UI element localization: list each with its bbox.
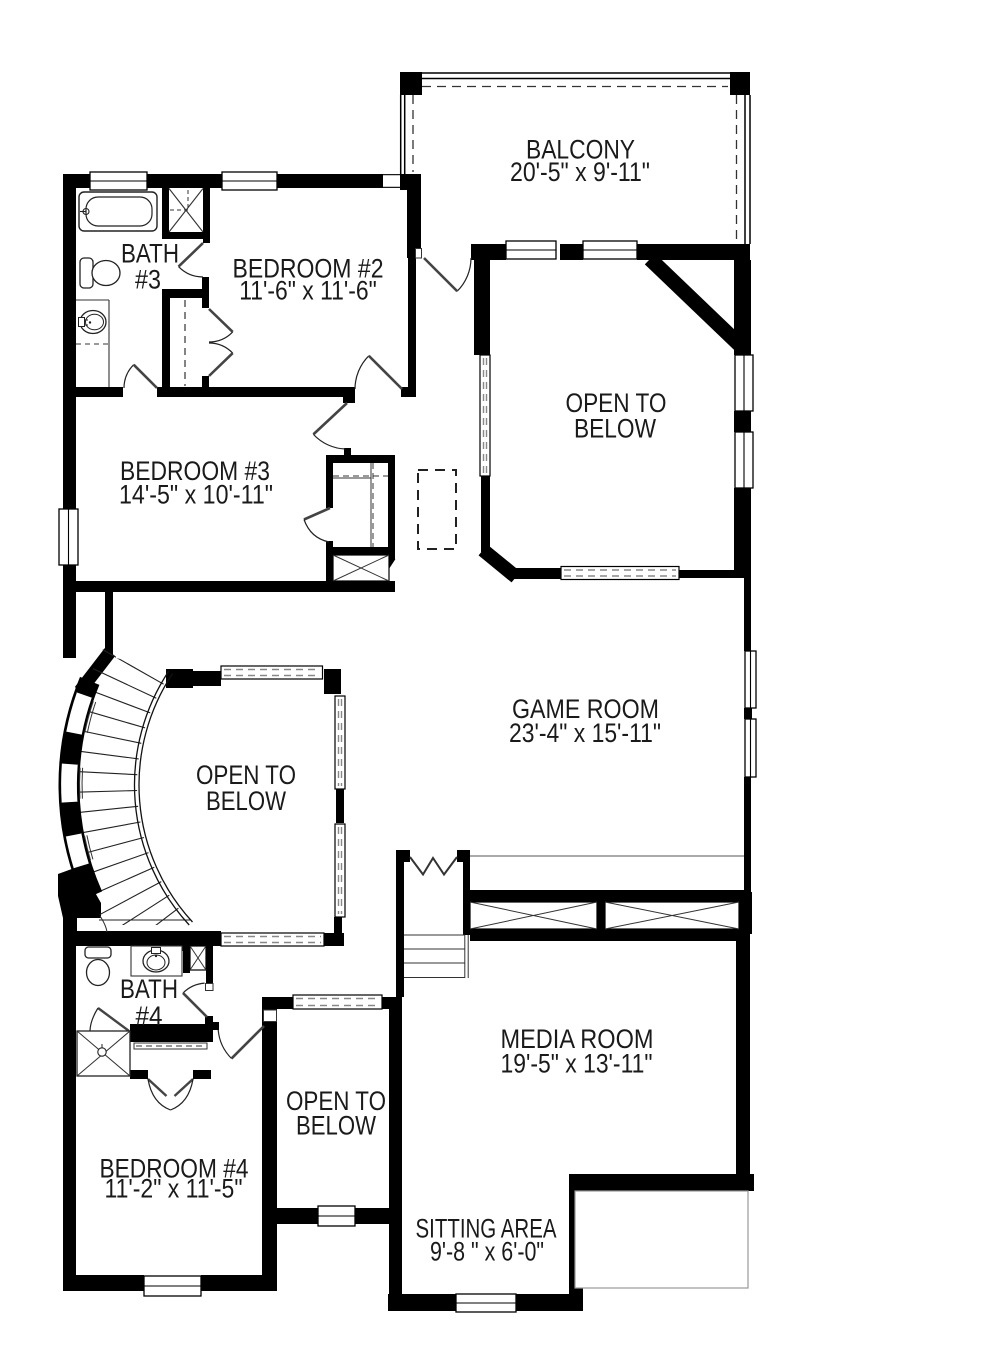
svg-text:#4: #4 xyxy=(136,1001,163,1031)
svg-text:BELOW: BELOW xyxy=(206,786,286,816)
svg-text:9'-8 " x 6'-0": 9'-8 " x 6'-0" xyxy=(430,1237,544,1267)
svg-text:14'-5" x 10'-11": 14'-5" x 10'-11" xyxy=(119,480,273,510)
svg-text:BATH: BATH xyxy=(120,974,178,1004)
svg-text:#3: #3 xyxy=(135,265,161,295)
svg-text:BELOW: BELOW xyxy=(296,1111,376,1141)
svg-text:11'-6" x 11'-6": 11'-6" x 11'-6" xyxy=(239,276,377,306)
svg-text:BELOW: BELOW xyxy=(574,414,656,444)
svg-text:19'-5" x 13'-11": 19'-5" x 13'-11" xyxy=(501,1049,653,1079)
svg-text:11'-2" x 11'-5": 11'-2" x 11'-5" xyxy=(105,1174,243,1204)
svg-text:20'-5" x 9'-11": 20'-5" x 9'-11" xyxy=(510,157,650,187)
svg-text:23'-4" x 15'-11": 23'-4" x 15'-11" xyxy=(509,718,661,748)
